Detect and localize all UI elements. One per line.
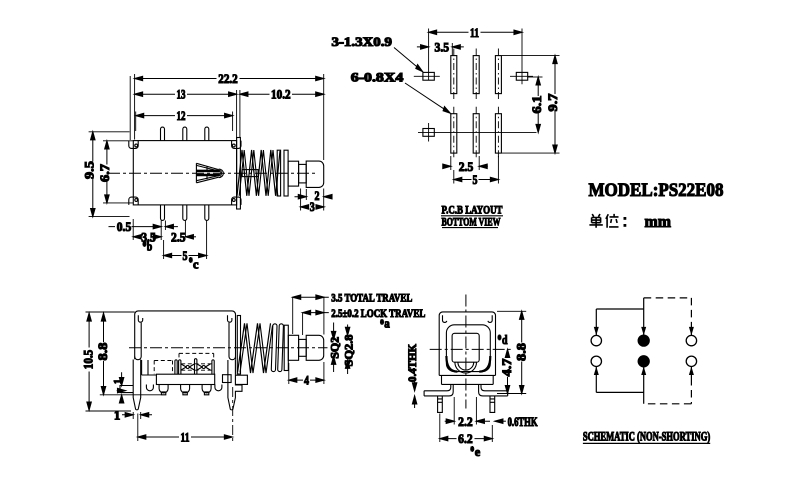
svg-text:*: *	[470, 443, 474, 458]
svg-text:mm: mm	[645, 212, 672, 231]
svg-text:9.5: 9.5	[82, 160, 97, 179]
svg-text:3-1.3X0.9: 3-1.3X0.9	[332, 35, 392, 49]
svg-text:5: 5	[183, 248, 188, 263]
svg-text:c: c	[193, 257, 199, 272]
svg-text:9.7: 9.7	[545, 93, 560, 112]
svg-text:11: 11	[470, 25, 479, 40]
svg-text:MODEL:PS22E08: MODEL:PS22E08	[589, 180, 724, 201]
svg-text:e: e	[475, 444, 481, 459]
svg-text:2.5±0.2 LOCK TRAVEL: 2.5±0.2 LOCK TRAVEL	[331, 308, 425, 320]
svg-text:*: *	[498, 332, 502, 347]
svg-text:SQ2.8: SQ2.8	[342, 335, 356, 367]
svg-text:3.5: 3.5	[435, 40, 450, 55]
svg-text:5: 5	[473, 172, 478, 187]
svg-text:8.8: 8.8	[95, 342, 110, 361]
svg-text:3: 3	[310, 199, 315, 214]
svg-text:10.5: 10.5	[81, 349, 96, 369]
svg-text:2.5: 2.5	[171, 229, 186, 244]
svg-text:2.2: 2.2	[458, 414, 473, 429]
svg-text:SCHEMATIC (NON-SHORTING): SCHEMATIC (NON-SHORTING)	[583, 429, 710, 443]
svg-text:4.7: 4.7	[499, 358, 514, 377]
svg-text:1: 1	[114, 408, 120, 422]
svg-text:a: a	[384, 316, 390, 331]
svg-text:6.1: 6.1	[529, 96, 544, 114]
svg-text:10.2: 10.2	[271, 87, 291, 102]
svg-text:6-0.8X4: 6-0.8X4	[351, 71, 404, 85]
svg-text:BOTTOM VIEW: BOTTOM VIEW	[442, 214, 501, 228]
svg-text:4: 4	[304, 373, 309, 388]
svg-text:3.5 TOTAL TRAVEL: 3.5 TOTAL TRAVEL	[331, 293, 412, 305]
svg-text:1: 1	[112, 379, 124, 384]
svg-text:12: 12	[177, 108, 186, 123]
svg-text:2.5: 2.5	[459, 159, 474, 174]
svg-text:2: 2	[315, 188, 320, 203]
svg-text:0.6THK: 0.6THK	[508, 415, 538, 429]
svg-text:13: 13	[177, 87, 186, 102]
svg-text:0.5: 0.5	[117, 219, 132, 234]
svg-text:d: d	[502, 332, 508, 347]
svg-text:11: 11	[181, 430, 190, 445]
svg-text:6.7: 6.7	[97, 163, 112, 182]
svg-text:SQ2: SQ2	[328, 337, 342, 359]
svg-text:b: b	[147, 239, 153, 254]
svg-text:22.2: 22.2	[218, 71, 238, 86]
svg-text:0.4THK: 0.4THK	[405, 343, 419, 382]
svg-text:8.8: 8.8	[514, 342, 529, 361]
